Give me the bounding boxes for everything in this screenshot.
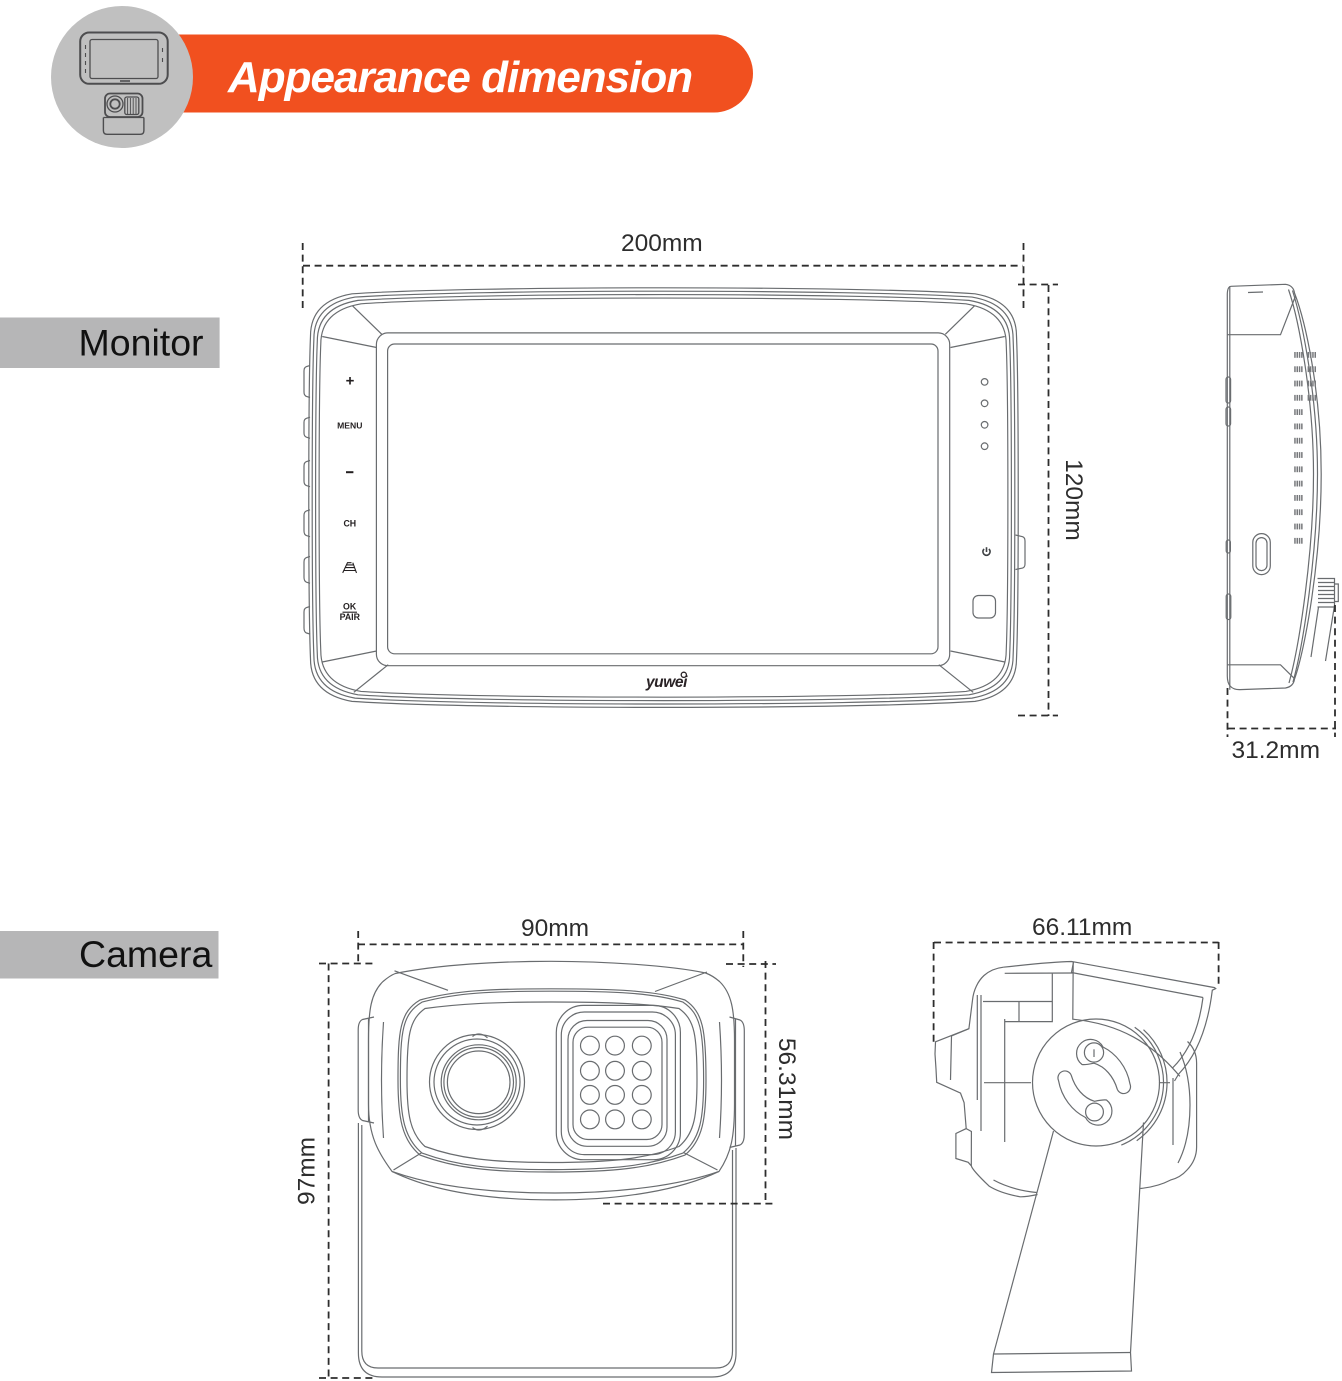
svg-text:200mm: 200mm — [621, 230, 703, 257]
svg-text:Camera: Camera — [79, 933, 213, 975]
svg-text:CH: CH — [343, 519, 356, 529]
svg-text:97mm: 97mm — [293, 1137, 320, 1205]
svg-text:120mm: 120mm — [1060, 459, 1087, 541]
svg-text:Monitor: Monitor — [79, 322, 204, 364]
svg-text:90mm: 90mm — [521, 915, 589, 942]
svg-text:+: + — [346, 373, 355, 390]
svg-text:OK: OK — [343, 601, 357, 611]
svg-text:PAIR: PAIR — [340, 612, 361, 622]
svg-text:MENU: MENU — [337, 420, 362, 430]
svg-text:66.11mm: 66.11mm — [1032, 914, 1132, 941]
svg-text:56.31mm: 56.31mm — [773, 1038, 800, 1140]
svg-text:31.2mm: 31.2mm — [1232, 737, 1321, 764]
svg-text:Appearance dimension: Appearance dimension — [227, 53, 692, 102]
